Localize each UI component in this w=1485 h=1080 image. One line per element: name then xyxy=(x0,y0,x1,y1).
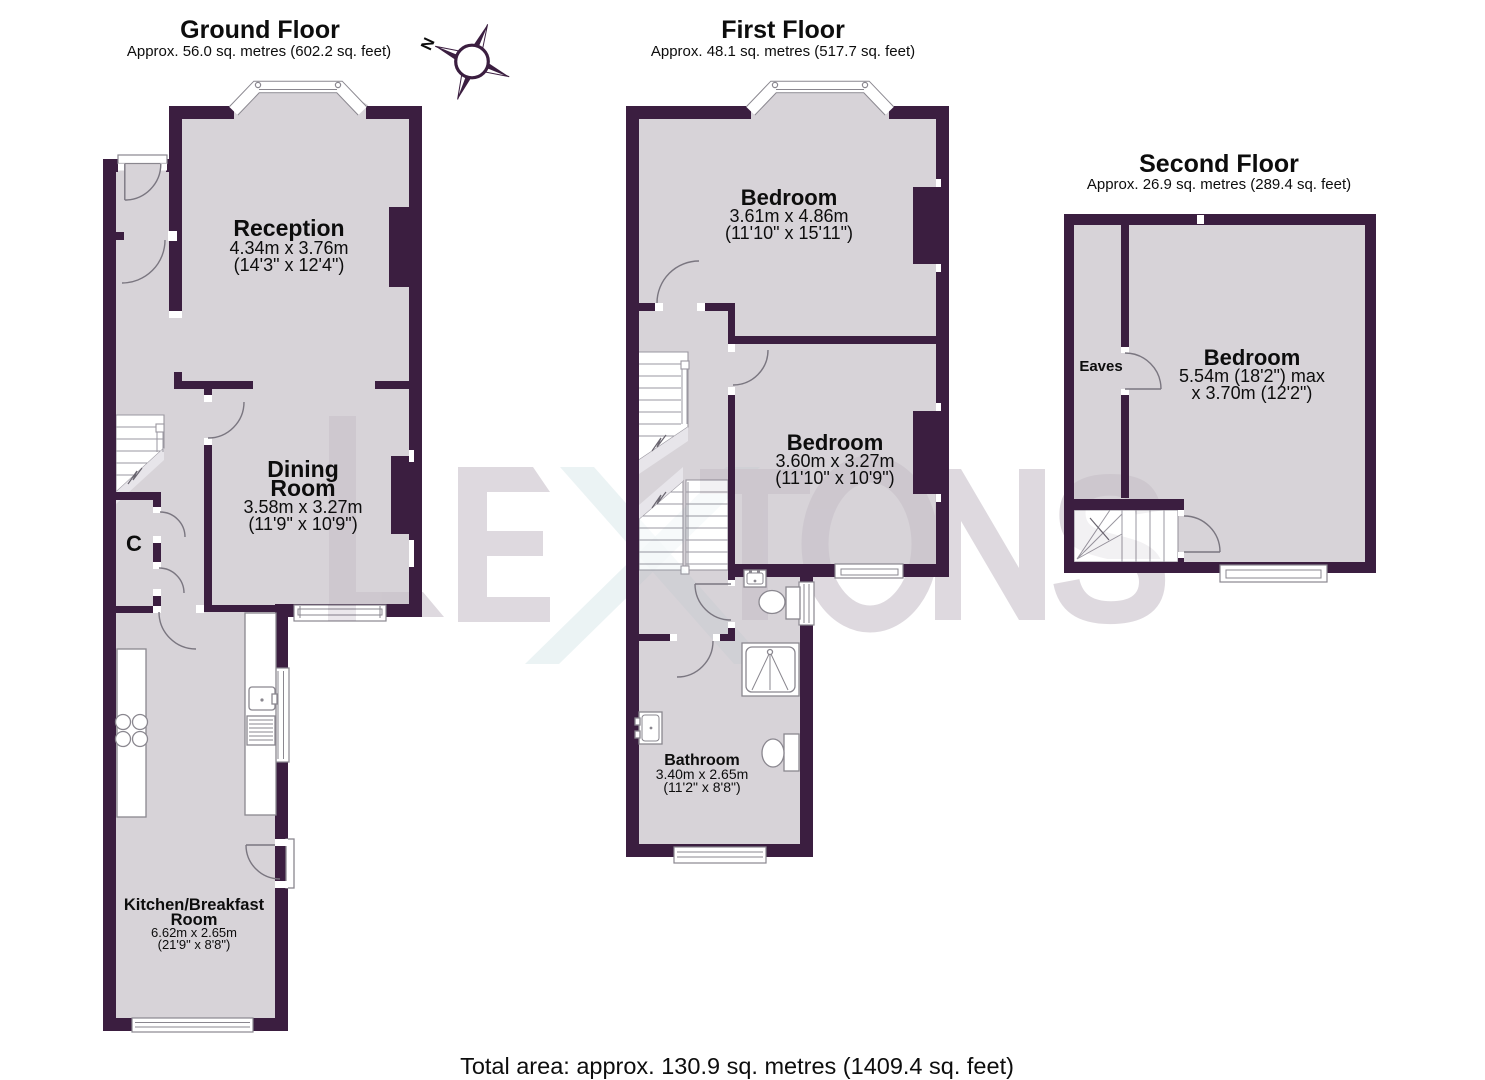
svg-text:C: C xyxy=(126,531,142,556)
svg-text:Approx. 26.9 sq. metres (289.4: Approx. 26.9 sq. metres (289.4 sq. feet) xyxy=(1087,176,1351,193)
svg-text:(11'9" x 10'9"): (11'9" x 10'9") xyxy=(248,514,357,534)
svg-text:(11'10" x 10'9"): (11'10" x 10'9") xyxy=(775,468,894,488)
svg-text:(14'3" x 12'4"): (14'3" x 12'4") xyxy=(234,255,345,275)
svg-text:Ground Floor: Ground Floor xyxy=(180,16,340,44)
svg-text:Approx. 56.0 sq. metres (602.2: Approx. 56.0 sq. metres (602.2 sq. feet) xyxy=(127,43,391,60)
svg-text:Approx. 48.1 sq. metres (517.7: Approx. 48.1 sq. metres (517.7 sq. feet) xyxy=(651,43,915,60)
svg-text:(21'9" x 8'8"): (21'9" x 8'8") xyxy=(158,937,231,952)
svg-text:First Floor: First Floor xyxy=(721,16,845,44)
svg-text:Eaves: Eaves xyxy=(1079,358,1122,375)
svg-text:Second Floor: Second Floor xyxy=(1139,150,1299,178)
svg-text:x 3.70m (12'2"): x 3.70m (12'2") xyxy=(1192,383,1313,403)
svg-text:(11'2" x 8'8"): (11'2" x 8'8") xyxy=(663,779,740,795)
svg-text:Total area: approx. 130.9 sq.: Total area: approx. 130.9 sq. metres (14… xyxy=(460,1053,1014,1079)
svg-text:(11'10" x 15'11"): (11'10" x 15'11") xyxy=(725,223,853,243)
